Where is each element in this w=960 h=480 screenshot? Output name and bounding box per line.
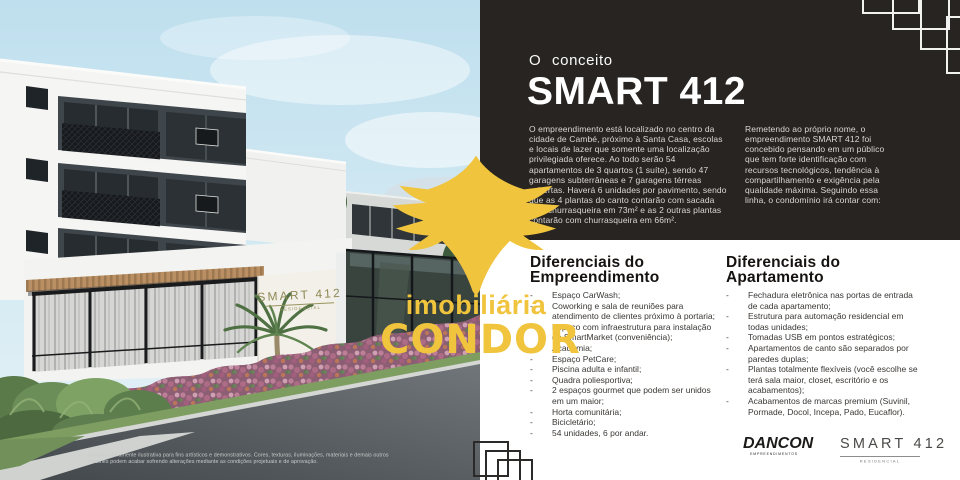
list-item-text: Estrutura para automação residencial em … <box>748 311 920 332</box>
list-item-text: 54 unidades, 6 por andar. <box>552 428 716 439</box>
decor-square-dark <box>497 459 533 480</box>
list-item-text: Espaço CarWash; <box>552 290 716 301</box>
list-item-text: Horta comunitária; <box>552 407 716 418</box>
list-item-text: Apartamentos de canto são separados por … <box>748 343 920 364</box>
list-item-text: Acabamentos de marcas premium (Suvinil, … <box>748 396 920 417</box>
smart412-logo-subtitle: RESIDENCIAL <box>845 459 915 464</box>
dancon-logo: DANCON EMPREENDIMENTOS <box>743 435 805 461</box>
bullet-dash: - <box>530 407 552 418</box>
list-item: -54 unidades, 6 por andar. <box>530 428 716 439</box>
image-disclaimer: Imagem meramente ilustrativa para fins a… <box>88 452 408 465</box>
list-item-text: Plantas totalmente flexíveis (você escol… <box>748 364 920 396</box>
bullet-dash: - <box>530 385 552 406</box>
condor-bird-shape <box>392 156 559 297</box>
smart412-logo: SMART 412 RESIDENCIAL <box>840 436 920 468</box>
building-signage-subtitle: RESIDENCIAL <box>276 305 325 312</box>
condor-bird-icon <box>387 150 565 300</box>
list-item-text: Quadra poliesportiva; <box>552 375 716 386</box>
cloud <box>160 16 350 60</box>
bullet-dash: - <box>726 332 748 343</box>
building-signage: SMART 412 RESIDENCIAL <box>255 286 344 318</box>
bullet-dash: - <box>726 290 748 311</box>
concept-paragraph-right: Remetendo ao próprio nome, o empreendime… <box>745 124 885 205</box>
list-item-text: Tomadas USB em pontos estratégicos; <box>748 332 920 343</box>
list-item: -Estrutura para automação residencial em… <box>726 311 920 332</box>
list-item-text: Piscina adulta e infantil; <box>552 364 716 375</box>
dancon-logo-subtitle: EMPREENDIMENTOS <box>743 452 805 456</box>
bullet-dash: - <box>726 364 748 396</box>
watermark-brand-bottom: CONDOR <box>380 317 572 363</box>
list-item: -Horta comunitária; <box>530 407 716 418</box>
dancon-logo-name: DANCON <box>743 435 805 453</box>
bullet-dash: - <box>530 364 552 375</box>
list-item: -Quadra poliesportiva; <box>530 375 716 386</box>
list-item-text: Bicicletário; <box>552 417 716 428</box>
list-item: -Fechadura eletrônica nas portas de entr… <box>726 290 920 311</box>
apartment-differentials-list: -Fechadura eletrônica nas portas de entr… <box>726 290 920 417</box>
apartment-differentials-title: Diferenciais do Apartamento <box>726 256 891 285</box>
list-item-text: Fechadura eletrônica nas portas de entra… <box>748 290 920 311</box>
imobiliaria-condor-watermark: imobiliária CONDOR <box>380 150 572 363</box>
bullet-dash: - <box>530 417 552 428</box>
page-title: SMART 412 <box>527 70 746 114</box>
list-item-text: 2 espaços gourmet que podem ser unidos e… <box>552 385 716 406</box>
decor-square <box>946 16 960 74</box>
smart412-logo-name: SMART 412 <box>840 436 920 457</box>
section-kicker: O conceito <box>529 52 613 69</box>
brochure-slide: SMART 412 RESIDENCIAL Imagem meramente i… <box>0 0 960 480</box>
bullet-dash: - <box>726 343 748 364</box>
bullet-dash: - <box>530 375 552 386</box>
list-item: -Plantas totalmente flexíveis (você esco… <box>726 364 920 396</box>
bullet-dash: - <box>530 428 552 439</box>
bullet-dash: - <box>726 311 748 332</box>
list-item: -Bicicletário; <box>530 417 716 428</box>
bullet-dash: - <box>726 396 748 417</box>
list-item: -Piscina adulta e infantil; <box>530 364 716 375</box>
list-item: -Tomadas USB em pontos estratégicos; <box>726 332 920 343</box>
list-item: -Apartamentos de canto são separados por… <box>726 343 920 364</box>
list-item: -2 espaços gourmet que podem ser unidos … <box>530 385 716 406</box>
list-item: -Acabamentos de marcas premium (Suvinil,… <box>726 396 920 417</box>
